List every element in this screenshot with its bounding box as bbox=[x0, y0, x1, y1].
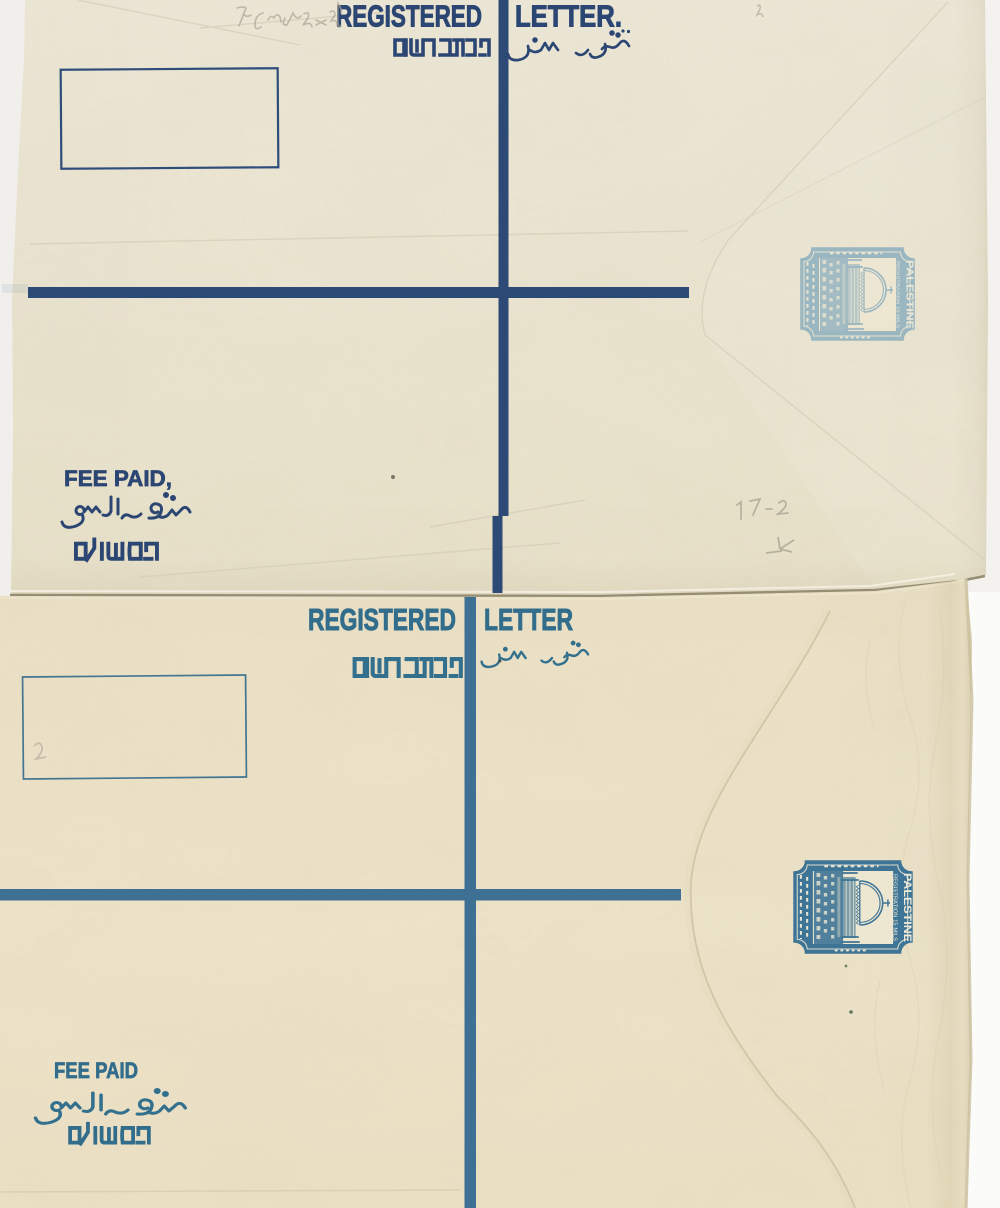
svg-text:LETTER.: LETTER. bbox=[515, 0, 622, 34]
svg-text:REGISTERED: REGISTERED bbox=[308, 603, 456, 637]
svg-text:FEE PAID,: FEE PAID, bbox=[64, 466, 172, 491]
svg-text:REGISTERED: REGISTERED bbox=[336, 0, 482, 34]
svg-text:LETTER: LETTER bbox=[484, 603, 573, 637]
svg-text:FEE PAID: FEE PAID bbox=[54, 1058, 138, 1083]
